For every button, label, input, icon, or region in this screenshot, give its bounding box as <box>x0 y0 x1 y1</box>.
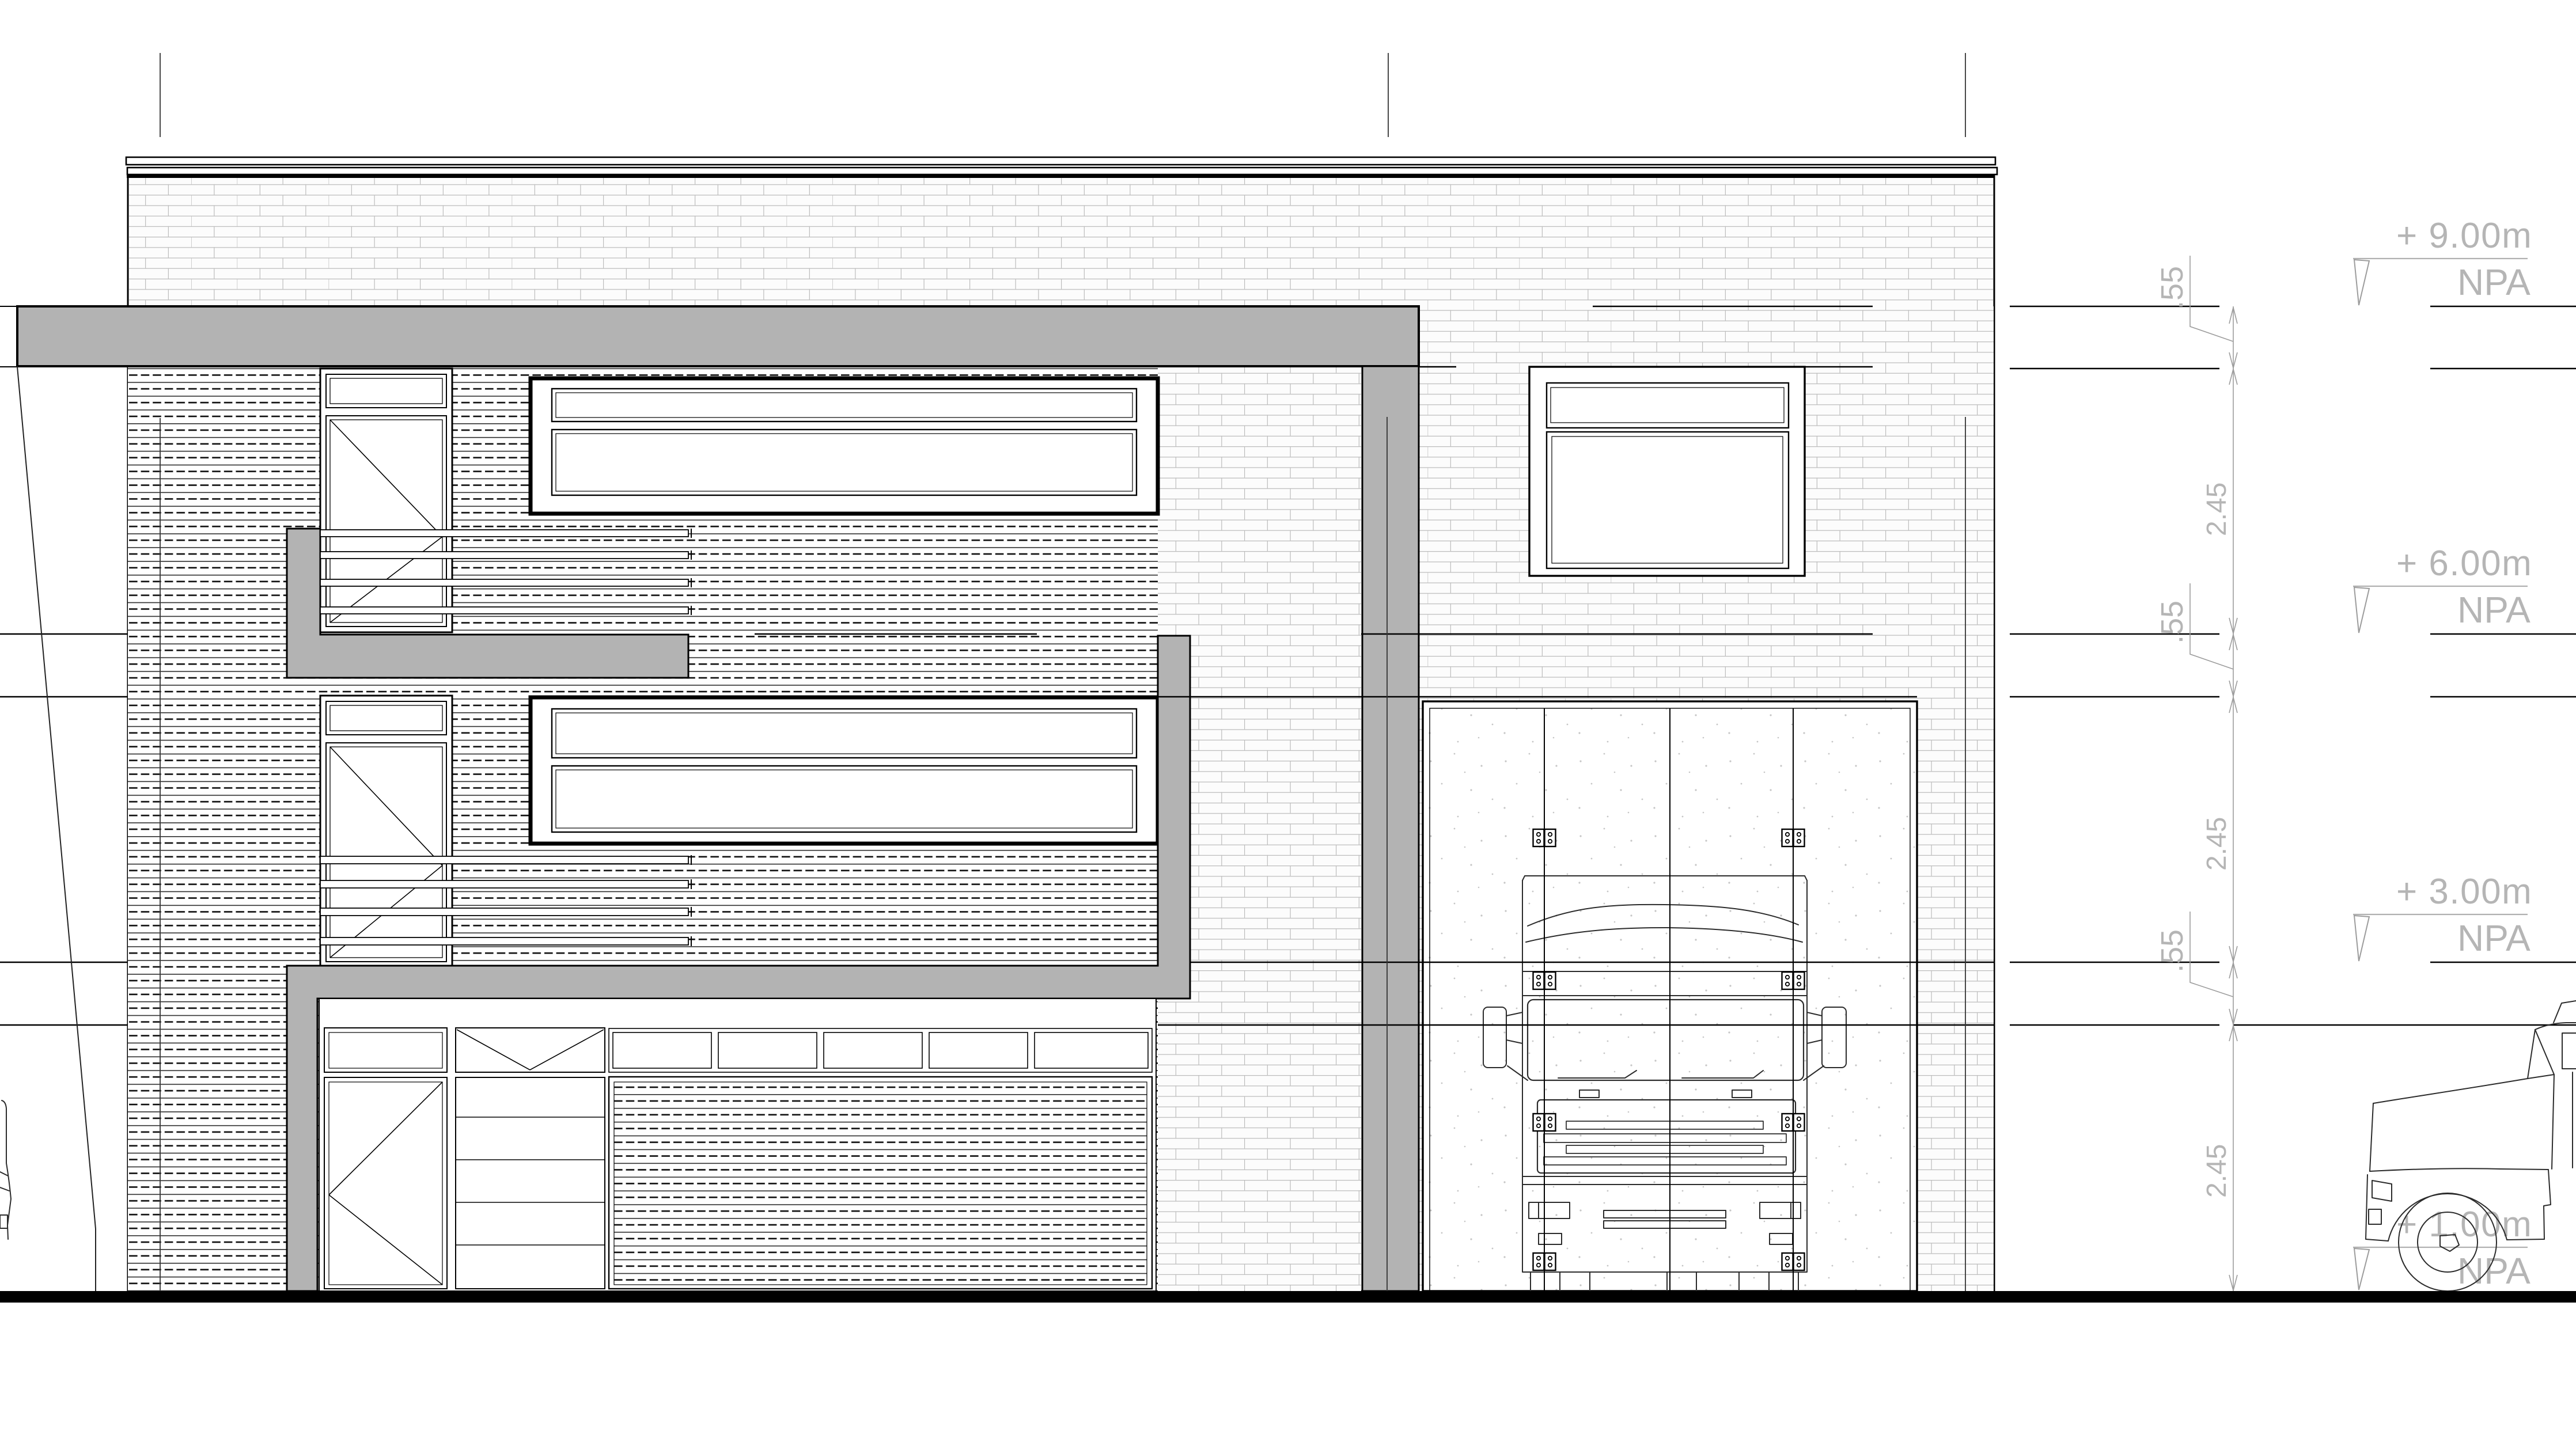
svg-text:+ 3.00m: + 3.00m <box>2396 872 2532 912</box>
svg-text:NPA: NPA <box>2457 917 2530 959</box>
svg-text:2.45: 2.45 <box>2202 1144 2232 1198</box>
svg-text:+ 1.00m: + 1.00m <box>2396 1205 2532 1244</box>
svg-text:2.45: 2.45 <box>2202 483 2232 536</box>
svg-text:NPA: NPA <box>2457 261 2530 303</box>
svg-text:NPA: NPA <box>2457 589 2530 631</box>
svg-text:+ 9.00m: + 9.00m <box>2396 216 2532 256</box>
svg-text:.55: .55 <box>2155 929 2189 973</box>
svg-text:.55: .55 <box>2155 266 2189 309</box>
svg-text:.55: .55 <box>2155 601 2189 644</box>
svg-text:2.45: 2.45 <box>2202 817 2232 871</box>
svg-text:+ 6.00m: + 6.00m <box>2396 544 2532 583</box>
